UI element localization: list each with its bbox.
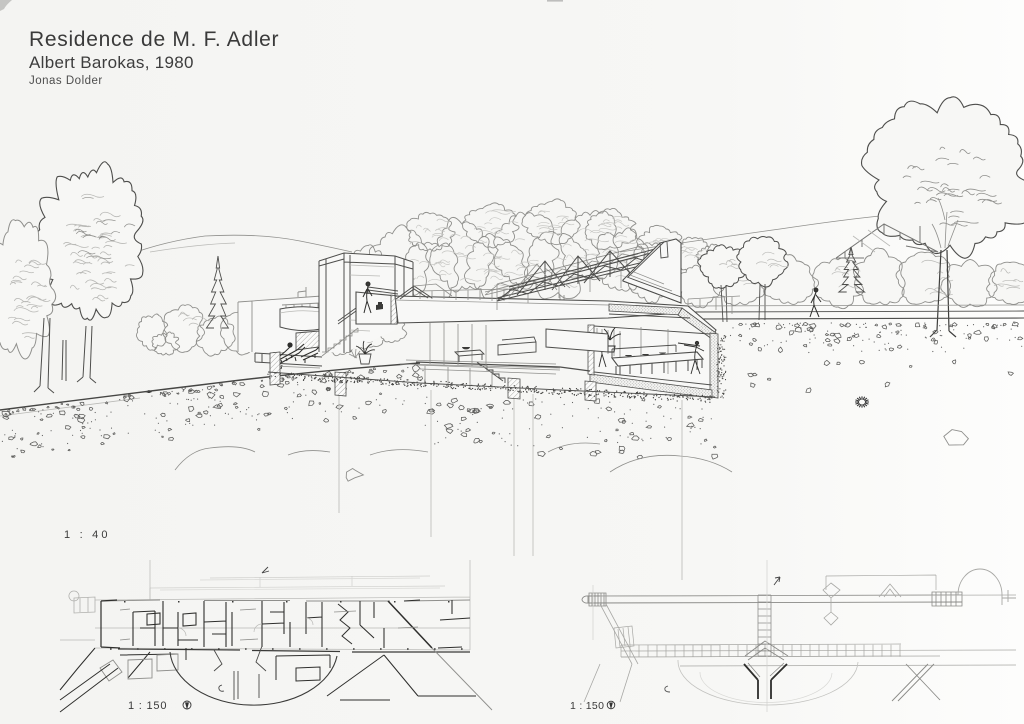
svg-text:1 : 40: 1 : 40 — [64, 529, 111, 541]
svg-text:Residence de M. F. Adler: Residence de M. F. Adler — [29, 28, 279, 51]
svg-text:1 : 150: 1 : 150 — [570, 700, 604, 712]
svg-text:Albert Barokas, 1980: Albert Barokas, 1980 — [29, 53, 194, 72]
svg-text:Jonas Dolder: Jonas Dolder — [29, 75, 103, 87]
svg-text:1 : 150: 1 : 150 — [128, 700, 167, 712]
